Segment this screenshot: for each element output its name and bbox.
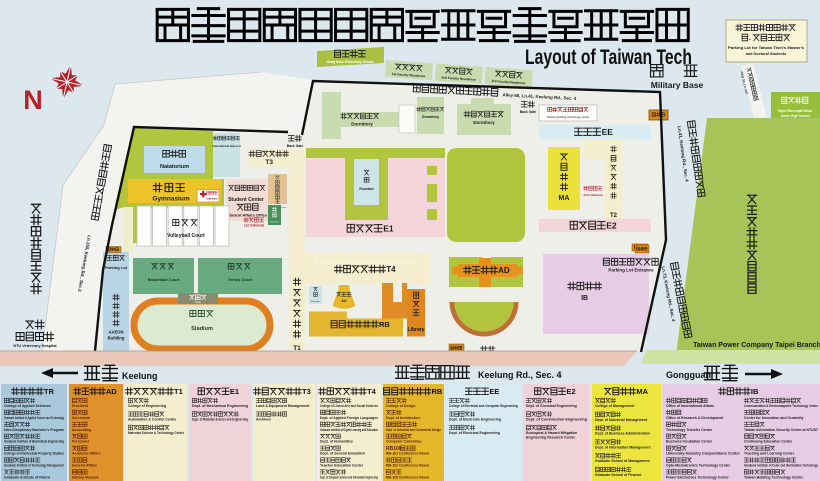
svg-text:History Museum: History Museum	[72, 475, 99, 479]
svg-text:Junior High School: Junior High School	[780, 114, 809, 118]
svg-text:Dept. of Mechanical Engineerin: Dept. of Mechanical Engineering	[192, 404, 248, 408]
svg-text:T3: T3	[265, 159, 273, 166]
svg-text:T2: T2	[610, 213, 618, 219]
svg-text:AU: AU	[341, 299, 347, 303]
svg-text:Technology Transfer Center: Technology Transfer Center	[666, 428, 713, 432]
svg-text:T4: T4	[386, 265, 396, 274]
svg-text:College of Management: College of Management	[595, 404, 635, 408]
svg-text:T4: T4	[367, 387, 377, 396]
svg-text:MA: MA	[559, 195, 570, 202]
svg-text:Gymnasium: Gymnasium	[152, 196, 189, 203]
svg-text:Graduate Institute of Applied: Graduate Institute of Applied Science an…	[4, 416, 64, 420]
svg-text:Dept. of Materials Science and: Dept. of Materials Science and Engineeri…	[192, 418, 248, 422]
svg-text:Graduate Institute of Color an: Graduate Institute of Color and Illumina…	[744, 464, 818, 468]
svg-text:Natatorium: Natatorium	[160, 164, 189, 170]
svg-text:Inter-Disciplinary Bachelor's: Inter-Disciplinary Bachelor's Program	[4, 428, 64, 432]
svg-text:Fountain: Fountain	[311, 300, 320, 303]
svg-text:Fountain: Fountain	[359, 187, 373, 191]
svg-text:E2: E2	[606, 220, 617, 230]
svg-text:Graduate Institute of Technolo: Graduate Institute of Technology Managem…	[4, 464, 65, 468]
svg-text:Archives: Archives	[256, 418, 271, 422]
svg-text:Keelung: Keelung	[122, 371, 158, 381]
svg-text:Student Affairs Office: Student Affairs Office	[227, 213, 268, 218]
svg-text:Secretariat: Secretariat	[72, 416, 91, 420]
svg-text:Ecological & Hazard Mitigation: Ecological & Hazard Mitigation	[526, 431, 577, 435]
svg-text:E1: E1	[230, 387, 239, 396]
svg-text:Engineering Research Center: Engineering Research Center	[526, 436, 576, 440]
svg-text:TR: TR	[44, 387, 55, 396]
svg-text:E2: E2	[566, 387, 575, 396]
svg-text:AD: AD	[498, 266, 510, 275]
svg-text:Layout of Taiwan Tech: Layout of Taiwan Tech	[525, 46, 692, 69]
svg-text:Dept. of Business Administrati: Dept. of Business Administration	[595, 432, 650, 436]
svg-text:AAEON: AAEON	[108, 330, 123, 335]
svg-text:Dept. of Information Managemen: Dept. of Information Management	[595, 445, 651, 449]
svg-text:RB-102 Conference Room: RB-102 Conference Room	[386, 464, 429, 468]
svg-text:Office of International Affair: Office of International Affairs	[666, 404, 714, 408]
svg-text:Parking Lot Entrance: Parking Lot Entrance	[608, 268, 654, 273]
svg-text:Infirmary: Infirmary	[206, 197, 218, 201]
svg-text:Parking Lot: Parking Lot	[105, 265, 128, 270]
svg-text:Taiwan Power Company Taipei Br: Taiwan Power Company Taipei Branch	[693, 342, 820, 349]
svg-text:Office of Research & Developme: Office of Research & Development	[666, 416, 724, 420]
svg-text:Center for Innovation and Crea: Center for Innovation and Creativity	[744, 416, 804, 420]
svg-text:College of Design: College of Design	[386, 404, 416, 408]
svg-text:T1: T1	[174, 387, 183, 396]
svg-text:Keelung Rd., Sec. 4: Keelung Rd., Sec. 4	[478, 370, 562, 380]
svg-text:Taiwan Information Security Ce: Taiwan Information Security Center at NT…	[744, 428, 819, 432]
svg-text:RB-105 Conference Room: RB-105 Conference Room	[386, 475, 429, 479]
svg-text:Gong Guan Elementary School: Gong Guan Elementary School	[327, 60, 374, 64]
svg-text:Dept. of Humanities: Dept. of Humanities	[320, 440, 353, 444]
svg-text:Student Center: Student Center	[228, 197, 264, 203]
svg-text:General Affairs: General Affairs	[72, 464, 97, 468]
svg-text:College of Electrical and Comp: College of Electrical and Computer Engin…	[449, 404, 518, 408]
svg-text:AD: AD	[106, 387, 117, 396]
svg-text:Tennis Court: Tennis Court	[228, 277, 253, 282]
svg-text:President: President	[72, 404, 89, 408]
svg-text:Dept. of Electronic Engineerin: Dept. of Electronic Engineering	[449, 418, 501, 422]
svg-text:Building: Building	[108, 336, 125, 341]
svg-text:Stadium: Stadium	[191, 326, 213, 332]
svg-text:Teacher Education Center: Teacher Education Center	[320, 464, 364, 468]
svg-text:.: .	[749, 35, 751, 42]
svg-text:Graduate School of Finance: Graduate School of Finance	[595, 473, 642, 477]
svg-text:Library: Library	[408, 327, 425, 333]
svg-text:Dept. of Applied Foreign Langu: Dept. of Applied Foreign Languages	[320, 416, 378, 420]
svg-text:Teaching and Learning Center: Teaching and Learning Center	[744, 452, 795, 456]
svg-text:Basketball Court: Basketball Court	[148, 277, 180, 282]
svg-text:Parking Lot for Taiwan Tech's: Parking Lot for Taiwan Tech's Master's	[728, 46, 804, 50]
svg-text:Dormitory: Dormitory	[473, 120, 495, 125]
svg-text:Accounting: Accounting	[72, 428, 91, 432]
svg-text:Stage: Stage	[195, 301, 202, 304]
svg-text:Automation & Control Center: Automation & Control Center	[128, 418, 177, 422]
svg-text:College of Intellectual Proper: College of Intellectual Property Studies	[4, 452, 64, 456]
svg-text:Business Incubation Center: Business Incubation Center	[666, 440, 713, 444]
svg-text:Graduate Institute of Digital: Graduate Institute of Digital Learning a…	[320, 428, 378, 432]
svg-text:Back Gate: Back Gate	[287, 144, 304, 148]
svg-text:IB: IB	[581, 295, 588, 302]
svg-text:1st Cafeteria: 1st Cafeteria	[244, 224, 264, 228]
svg-text:College of Engineering: College of Engineering	[128, 404, 166, 408]
svg-text:Dept. of Chemical Engineering: Dept. of Chemical Engineering	[526, 404, 577, 408]
svg-text:Taiwan Building Technology Cen: Taiwan Building Technology Center	[744, 475, 804, 479]
svg-text:NTU Veterinary Hospital: NTU Veterinary Hospital	[13, 344, 56, 348]
svg-text:MA: MA	[636, 387, 648, 396]
svg-text:Back Gate: Back Gate	[520, 110, 537, 114]
svg-text:2nd Cafeteria: 2nd Cafeteria	[583, 193, 602, 197]
svg-text:Communication & Electromagneti: Communication & Electromagnetic Technolo…	[744, 404, 819, 408]
svg-text:N: N	[23, 85, 43, 115]
svg-text:Dormitory: Dormitory	[351, 122, 373, 127]
svg-text:Academic Affairs: Academic Affairs	[72, 452, 101, 456]
svg-text:EE: EE	[489, 387, 499, 396]
svg-text:College of Applied Sciences: College of Applied Sciences	[4, 404, 51, 408]
svg-text:Graduate Institute of Patent: Graduate Institute of Patent	[4, 475, 51, 479]
svg-text:Dormitory: Dormitory	[422, 115, 439, 119]
svg-text:Dept. of Construction Engineer: Dept. of Construction Engineering	[526, 418, 587, 422]
svg-text:Taiwan building technology cen: Taiwan building technology center	[547, 115, 589, 119]
svg-text:EE: EE	[602, 127, 614, 137]
svg-text:Post Office: Post Office	[270, 221, 279, 224]
svg-text:Dept. of Architecture: Dept. of Architecture	[386, 416, 421, 420]
svg-text:IB: IB	[751, 387, 759, 396]
svg-text:Volleyball Court: Volleyball Court	[167, 233, 205, 239]
svg-text:Dept. of General Education: Dept. of General Education	[320, 452, 365, 456]
svg-text:Graduate School of Management: Graduate School of Management	[595, 459, 650, 463]
svg-text:Dept. of Computer Science and: Dept. of Computer Science and Informatio…	[320, 475, 378, 479]
svg-text:Personnel: Personnel	[72, 440, 89, 444]
svg-text:Dept. of Industrial and Commer: Dept. of Industrial and Commercial Desig…	[386, 428, 441, 432]
svg-text:Continuing Education Center: Continuing Education Center	[744, 440, 793, 444]
svg-text:College of Liberal Arts and So: College of Liberal Arts and Social Scien…	[320, 404, 378, 408]
svg-text:RB-101 Conference Room: RB-101 Conference Room	[386, 452, 429, 456]
svg-text:Materials Science & Technology: Materials Science & Technology Center	[128, 431, 185, 435]
svg-text:RB: RB	[379, 320, 390, 329]
svg-text:University-Industry Cooperatio: University-Industry Cooperations Center	[666, 452, 741, 456]
svg-text:Power Electronics Technology C: Power Electronics Technology Center	[666, 475, 729, 479]
svg-text:and Doctoral Students: and Doctoral Students	[746, 52, 787, 56]
svg-text:Computer Committee: Computer Committee	[386, 440, 422, 444]
svg-text:International House II: International House II	[212, 144, 241, 148]
svg-text:E1: E1	[383, 223, 394, 233]
svg-text:T3: T3	[302, 387, 311, 396]
svg-text:Dept. of Electrical Engineerin: Dept. of Electrical Engineering	[449, 431, 500, 435]
svg-text:Dept. of Industrial Management: Dept. of Industrial Management	[595, 418, 648, 422]
svg-text:Taipei Municipal Minzu: Taipei Municipal Minzu	[778, 109, 813, 113]
svg-text:Gongguan: Gongguan	[666, 370, 711, 380]
svg-text:RB: RB	[432, 387, 443, 396]
svg-text:Military Base: Military Base	[651, 80, 704, 90]
svg-text:Graduate Institute of Biomedic: Graduate Institute of Biomedical Enginee…	[4, 440, 64, 444]
svg-text:Land & Equipment Management: Land & Equipment Management	[256, 404, 310, 408]
svg-text:Opto-Mechatronics Technology C: Opto-Mechatronics Technology Center	[666, 464, 731, 468]
